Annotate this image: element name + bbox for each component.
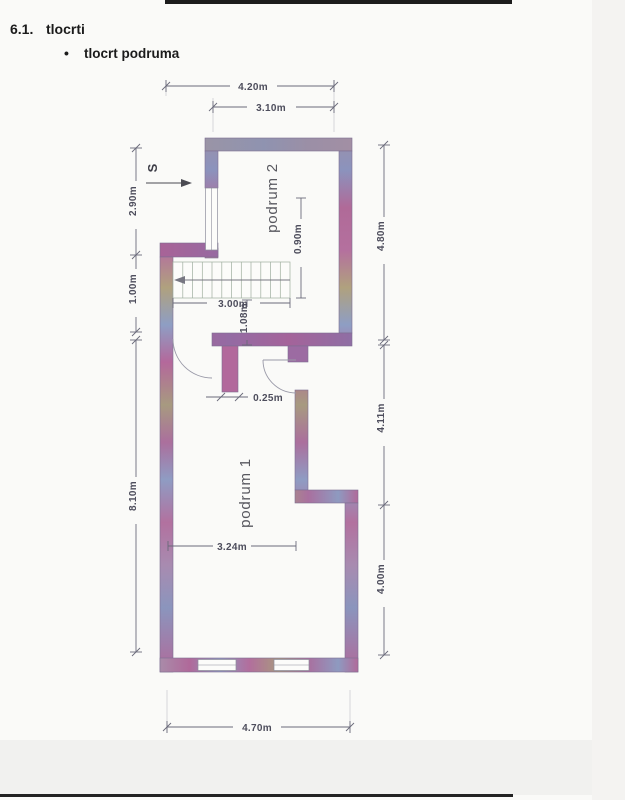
dim-left-upper: 2.90m	[128, 144, 142, 259]
dim-room1-width: 3.24m	[168, 541, 296, 553]
north-marker: S	[145, 163, 192, 187]
north-arrow-head	[181, 179, 192, 187]
extension-lines	[166, 80, 350, 733]
dim-left-lower: 8.10m	[128, 336, 142, 656]
dim-label-top-outer: 4.20m	[238, 82, 268, 93]
dim-label-right-mid: 4.11m	[376, 403, 387, 432]
dim-top-outer: 4.20m	[162, 80, 338, 93]
dim-label-left-mid: 1.00m	[128, 274, 139, 304]
dim-label-left-upper: 2.90m	[128, 186, 139, 216]
dim-label-top-inner: 3.10m	[256, 103, 286, 114]
dim-right-lower: 4.00m	[376, 505, 390, 659]
wall-podrum2-top	[205, 138, 352, 151]
wall-separator	[212, 333, 352, 346]
staircase	[173, 262, 290, 298]
dim-label-room1-width: 3.24m	[217, 542, 247, 553]
dim-label-left-lower: 8.10m	[128, 481, 139, 511]
wall-podrum1-jog	[295, 490, 358, 503]
dim-left-mid: 1.00m	[128, 255, 142, 336]
wall-podrum2-left-upper	[205, 151, 218, 188]
windows	[198, 188, 309, 671]
room-label-podrum2: podrum 2	[264, 163, 281, 233]
dim-right-mid: 4.11m	[376, 341, 390, 509]
dim-label-bottom: 4.70m	[242, 723, 272, 734]
wall-podrum1-bottom	[160, 658, 358, 672]
dim-stairs-depth: 0.90m	[293, 198, 306, 298]
dim-label-right-upper: 4.80m	[376, 221, 387, 251]
floor-plan-drawing: S podrum 2 podrum 1 4.20m 3.10m 2.90m	[0, 0, 625, 800]
dim-top-inner: 3.10m	[209, 101, 338, 114]
dim-label-right-lower: 4.00m	[376, 564, 387, 594]
dim-label-opening: 1.08m	[239, 303, 250, 333]
dim-stairs-width: 3.00m	[173, 298, 290, 310]
door-arc-right	[263, 360, 296, 393]
room-label-podrum1: podrum 1	[237, 458, 254, 528]
wall-podrum1-right-upper	[295, 390, 308, 490]
wall-left-outer	[160, 257, 173, 672]
north-marker-label: S	[145, 163, 160, 172]
dim-label-stairs-depth: 0.90m	[293, 224, 304, 254]
wall-podrum2-right	[339, 151, 352, 333]
wall-partition-stub	[222, 346, 238, 392]
dim-bottom: 4.70m	[163, 721, 354, 734]
dim-right-upper: 4.80m	[376, 141, 390, 344]
door-arc-left	[173, 339, 212, 378]
dim-label-partition: 0.25m	[253, 393, 283, 404]
wall-podrum1-right-lower	[345, 503, 358, 672]
dim-partition: 0.25m	[206, 393, 283, 404]
walls	[160, 138, 358, 672]
